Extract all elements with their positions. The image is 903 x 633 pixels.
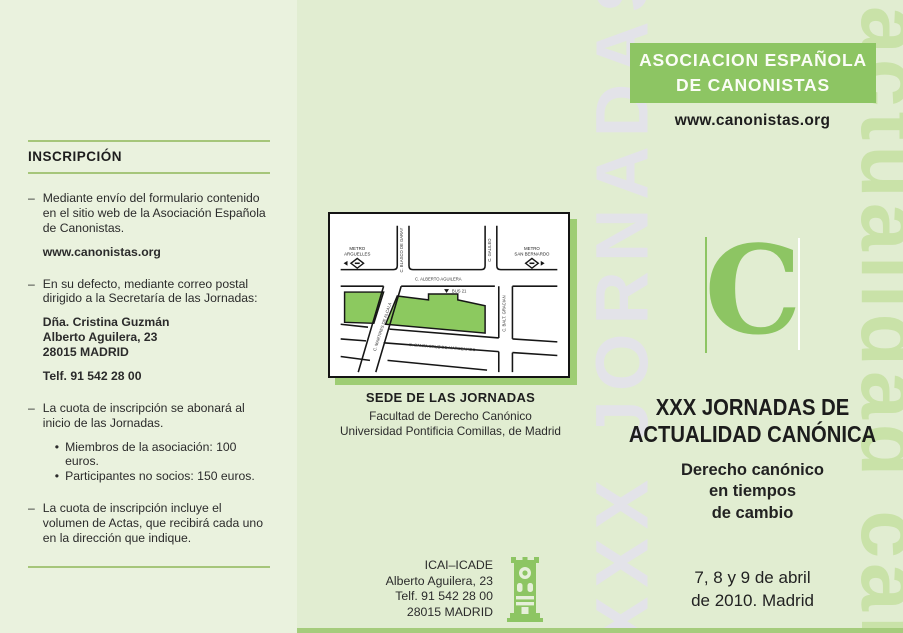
logo-right-line [798, 238, 800, 350]
section-end-rule [28, 566, 270, 568]
inscription-item-web: – Mediante envío del formulario contenid… [28, 191, 270, 260]
dash-marker: – [28, 277, 35, 384]
dash-marker: – [28, 191, 35, 260]
canonistas-c-logo: C [697, 229, 809, 351]
metro-arguelles-label-1: METRO [349, 246, 365, 251]
bottom-green-bar [297, 628, 903, 633]
icai-tower-icon [502, 556, 548, 624]
event-dates-line1: 7, 8 y 9 de abril [602, 567, 903, 590]
map-block-comillas [386, 294, 486, 333]
map-drawing: METRO ARGUELLES METRO SAN BERNARDO C. BL… [330, 214, 568, 376]
metro-sanbernardo-label-1: METRO [524, 246, 540, 251]
secretary-name: Dña. Cristina Guzmán [43, 315, 270, 330]
fee-nonmembers-text: Participantes no socios: 150 euros. [65, 469, 255, 484]
dash-marker: – [28, 501, 35, 546]
fee-members-row: • Miembros de la asociación: 100 euros. [55, 440, 270, 470]
association-website: www.canonistas.org [602, 112, 903, 130]
venue-line2: Universidad Pontificia Comillas, de Madr… [302, 424, 599, 439]
street-alberto-aguilera-label: C. ALBERTO AGUILERA [415, 276, 462, 281]
icai-org: ICAI–ICADE [386, 558, 493, 574]
inscription-heading: INSCRIPCIÓN [28, 140, 270, 174]
event-title-line1: XXX JORNADAS DE [620, 394, 885, 421]
event-dates-line2: de 2010. Madrid [602, 590, 903, 613]
metro-sanbernardo-label-2: SAN BERNARDO [514, 251, 550, 256]
fee-members-text: Miembros de la asociación: 100 euros. [65, 440, 270, 470]
location-map: METRO ARGUELLES METRO SAN BERNARDO C. BL… [328, 212, 570, 378]
bus-stop-icon [444, 289, 449, 293]
icai-city: 28015 MADRID [386, 605, 493, 621]
dash-marker: – [28, 401, 35, 484]
event-title: XXX JORNADAS DE ACTUALIDAD CANÓNICA [620, 394, 885, 448]
inscription-item-actas: – La cuota de inscripción incluye el vol… [28, 501, 270, 546]
street-santacruz-label: C. SANTA CRUZ DE MARCENADO [409, 342, 477, 352]
association-name-line2: DE CANONISTAS [676, 73, 830, 98]
secretary-phone: Telf. 91 542 28 00 [43, 369, 270, 384]
event-subtitle-line2: en tiempos [602, 481, 903, 502]
inscription-item-fee-text: La cuota de inscripción se abonará al in… [43, 401, 270, 431]
secretary-address-line2: 28015 MADRID [43, 345, 270, 360]
venue-line1: Facultad de Derecho Canónico [302, 409, 599, 424]
inscription-item-fee: – La cuota de inscripción se abonará al … [28, 401, 270, 484]
street-galileo-label: C. GALILEO [487, 238, 492, 262]
secretary-address-line1: Alberto Aguilera, 23 [43, 330, 270, 345]
association-banner: ASOCIACION ESPAÑOLA DE CANONISTAS [630, 43, 876, 103]
bullet-marker: • [55, 440, 59, 470]
event-subtitle-line1: Derecho canónico [602, 460, 903, 481]
event-subtitle-line3: de cambio [602, 503, 903, 524]
inscription-item-mail: – En su defecto, mediante correo postal … [28, 277, 270, 384]
metro-arguelles-icon [344, 258, 364, 268]
street-gracian-label: C. BALT. GRACIAN [502, 295, 507, 331]
street-blasco-label: C. BLASCO DE GARAY [399, 227, 404, 272]
inscription-item-mail-text: En su defecto, mediante correo postal di… [43, 277, 270, 307]
inscription-item-actas-text: La cuota de inscripción incluye el volum… [43, 501, 270, 546]
brochure-page: XXX JORNADAS actualidad canónica INSCRIP… [0, 0, 903, 633]
inscription-section: INSCRIPCIÓN – Mediante envío del formula… [28, 140, 270, 568]
event-title-line2: ACTUALIDAD CANÓNICA [620, 421, 885, 448]
metro-arguelles-label-2: ARGUELLES [344, 251, 370, 256]
icai-phone: Telf. 91 542 28 00 [386, 589, 493, 605]
icai-footer: ICAI–ICADE Alberto Aguilera, 23 Telf. 91… [318, 556, 548, 624]
website-text: www.canonistas.org [43, 245, 270, 260]
inscription-item-web-text: Mediante envío del formulario contenido … [43, 191, 270, 236]
metro-sanbernardo-icon [526, 258, 545, 268]
association-name-line1: ASOCIACION ESPAÑOLA [639, 48, 867, 73]
venue-title: SEDE DE LAS JORNADAS [302, 390, 599, 405]
venue-block: SEDE DE LAS JORNADAS Facultad de Derecho… [302, 390, 599, 438]
event-dates: 7, 8 y 9 de abril de 2010. Madrid [602, 567, 903, 613]
icai-address: Alberto Aguilera, 23 [386, 574, 493, 590]
event-subtitle: Derecho canónico en tiempos de cambio [602, 460, 903, 524]
fee-nonmembers-row: • Participantes no socios: 150 euros. [55, 469, 270, 484]
bullet-marker: • [55, 469, 59, 484]
bus-21-label: BUS 21 [452, 289, 467, 294]
